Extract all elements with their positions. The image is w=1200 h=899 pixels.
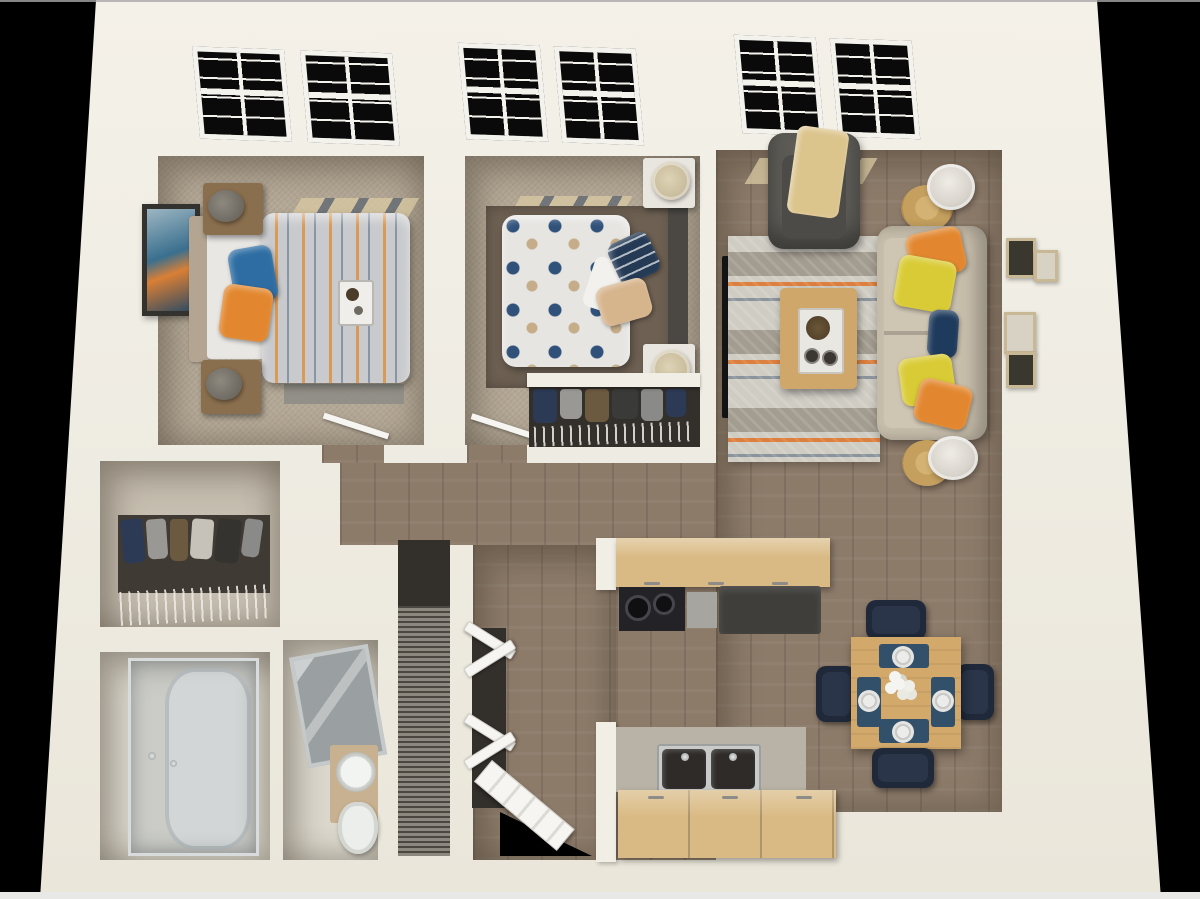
- sofa-pillow-navy: [926, 309, 959, 359]
- dishwasher: [687, 592, 717, 628]
- bedroom2-lamp-top: [652, 162, 690, 200]
- garment-gray: [240, 518, 263, 558]
- vanity-sink: [336, 752, 376, 792]
- toilet: [338, 802, 378, 854]
- refrigerator: [719, 586, 821, 634]
- garment-dark: [612, 389, 638, 419]
- cabinet-handle-icon: [722, 796, 738, 799]
- chair-seat: [962, 670, 988, 714]
- faucet-icon: [729, 753, 737, 761]
- bedroom1-window: [192, 46, 400, 145]
- garment-gray: [560, 389, 582, 419]
- window-pane-icon: [830, 38, 920, 139]
- gallery-frame: [1004, 312, 1036, 354]
- bedroom1-lamp-top: [208, 190, 244, 222]
- gallery-frame: [1034, 250, 1058, 282]
- dining-chair: [816, 666, 856, 722]
- living-room-window: [734, 35, 920, 140]
- tray-cup-icon: [354, 306, 363, 315]
- dining-chair: [866, 600, 926, 640]
- faucet-icon: [170, 760, 177, 767]
- cabinet-handle-icon: [644, 582, 660, 585]
- pillow-orange: [217, 283, 274, 343]
- window-pane-icon: [458, 43, 548, 142]
- hallway-wood-floor: [340, 463, 716, 545]
- bedroom2-closet-wall: [527, 373, 700, 387]
- hanging-clothes: [118, 515, 270, 565]
- faucet-icon: [681, 753, 689, 761]
- walk-in-closet-back: [118, 515, 270, 593]
- dining-chair: [956, 664, 994, 720]
- bottom-edge-strip: [0, 892, 1200, 899]
- floor-lamp-top: [927, 164, 975, 210]
- garment-light: [190, 518, 215, 559]
- bedroom1-lamp-bottom: [206, 368, 242, 400]
- garment-brown: [170, 519, 188, 561]
- plate-icon: [892, 646, 914, 668]
- floor-lamp-bottom: [928, 436, 978, 480]
- utility-louver-panel: [398, 606, 450, 856]
- garment-brown: [585, 389, 609, 422]
- window-pane-icon: [300, 50, 400, 146]
- cabinet-handle-icon: [708, 582, 724, 585]
- double-basin-sink: [657, 744, 761, 794]
- bedroom1-headboard: [189, 216, 209, 362]
- dining-chair: [872, 748, 934, 788]
- chair-seat: [872, 606, 920, 634]
- utility-closet-opening: [398, 540, 450, 606]
- plate-icon: [858, 690, 880, 712]
- cabinet-handle-icon: [648, 796, 664, 799]
- gallery-frame: [1006, 238, 1036, 278]
- burner-icon: [625, 595, 651, 621]
- kitchen-end-wall: [596, 722, 616, 862]
- garment-navy: [120, 518, 146, 564]
- chair-seat: [822, 672, 850, 716]
- bedroom2-door-threshold: [467, 445, 527, 463]
- chair-seat: [878, 754, 928, 782]
- bedroom2-headboard: [668, 196, 688, 348]
- window-pane-icon: [734, 35, 824, 136]
- cup-icon: [804, 348, 820, 364]
- breakfast-tray: [338, 280, 374, 326]
- cabinet-handle-icon: [772, 582, 788, 585]
- floor-plan-render: [0, 0, 1200, 899]
- base-cabinets: [618, 790, 836, 858]
- tray-bowl-icon: [346, 288, 359, 301]
- faucet-icon: [148, 752, 156, 760]
- plate-icon: [892, 721, 914, 743]
- garment-navy: [533, 389, 557, 423]
- garment-navy: [666, 389, 686, 417]
- cabinet-handle-icon: [796, 796, 812, 799]
- dining-table: [851, 637, 961, 749]
- plate-icon: [932, 690, 954, 712]
- garment-dark: [214, 518, 242, 564]
- bedroom1-door-threshold: [322, 445, 384, 463]
- garment-gray: [641, 389, 663, 421]
- garment-gray: [146, 518, 169, 559]
- kitchen-end-wall: [596, 538, 616, 590]
- sofa-pillow-yellow: [892, 253, 958, 314]
- bedroom2-window: [458, 43, 644, 146]
- bedroom1-area-rug: [284, 384, 404, 404]
- gallery-frame: [1006, 352, 1036, 388]
- top-edge-line: [0, 0, 1200, 2]
- burner-icon: [653, 593, 675, 615]
- decor-bowl: [806, 316, 830, 340]
- window-pane-icon: [192, 46, 292, 142]
- upper-cabinets: [616, 538, 830, 587]
- hanging-clothes: [529, 387, 700, 425]
- cup-icon: [822, 350, 838, 366]
- range-stove: [619, 587, 685, 631]
- window-pane-icon: [554, 46, 644, 145]
- flower-centerpiece: [893, 678, 905, 690]
- bedroom1-striped-duvet: [262, 213, 410, 383]
